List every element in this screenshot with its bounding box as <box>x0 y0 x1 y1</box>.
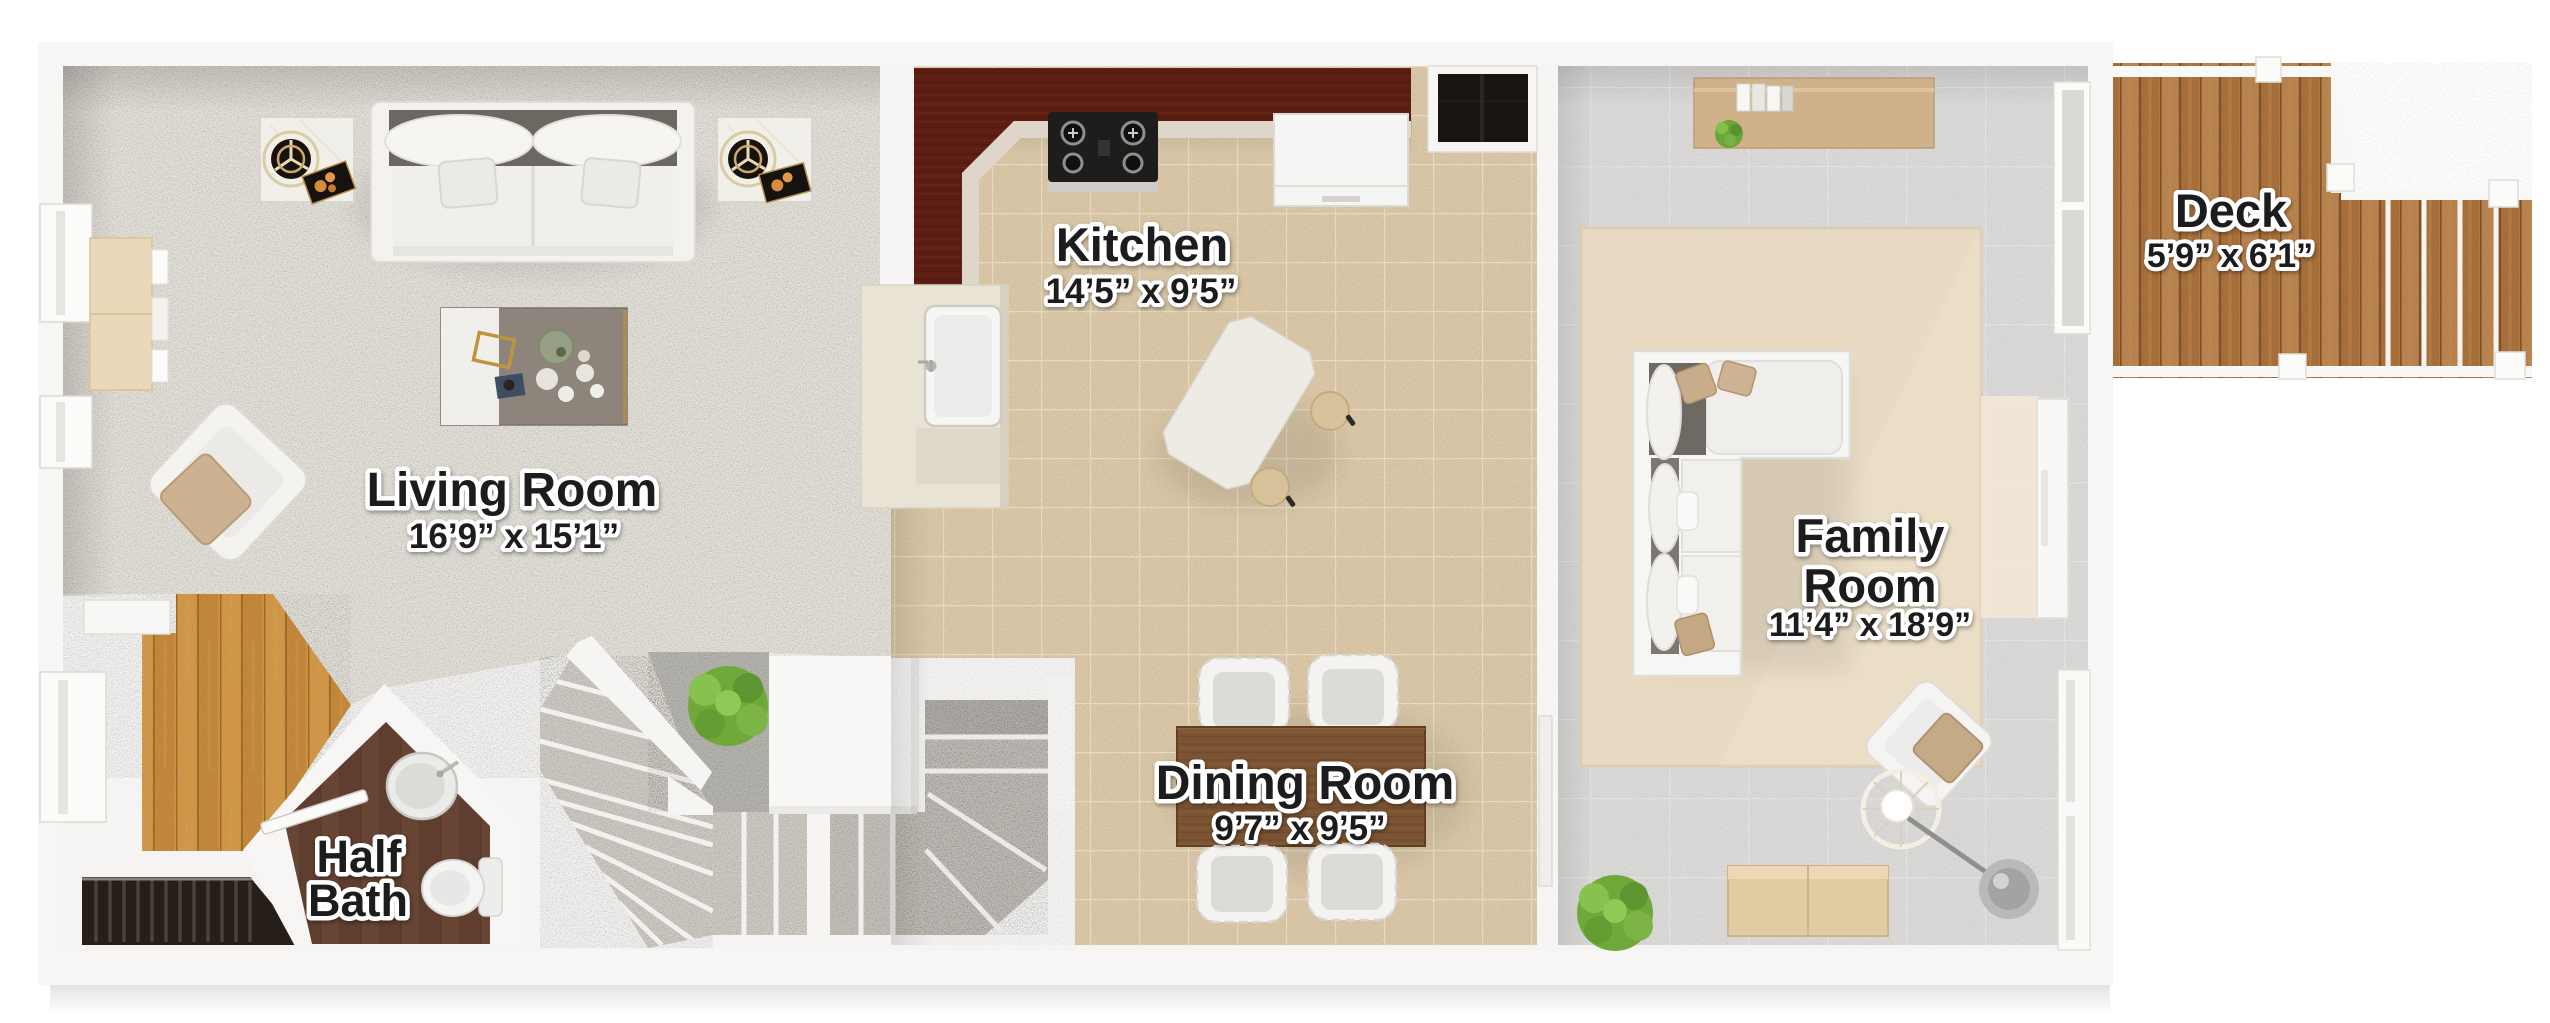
svg-text:14’5” x 9’5”: 14’5” x 9’5” <box>1046 272 1237 311</box>
svg-text:Family: Family <box>1796 509 1945 562</box>
svg-text:Deck: Deck <box>2175 184 2288 237</box>
svg-text:5’9” x 6’1”: 5’9” x 6’1” <box>2147 237 2313 275</box>
svg-text:Dining Room: Dining Room <box>1156 757 1455 810</box>
svg-text:Living Room: Living Room <box>367 464 658 517</box>
svg-text:16’9” x 15’1”: 16’9” x 15’1” <box>409 517 619 556</box>
svg-text:Room: Room <box>1803 559 1936 612</box>
svg-text:Kitchen: Kitchen <box>1056 218 1228 271</box>
svg-text:9’7” x 9’5”: 9’7” x 9’5” <box>1214 809 1385 848</box>
svg-text:Bath: Bath <box>308 875 408 926</box>
svg-text:11’4” x 18’9”: 11’4” x 18’9” <box>1769 606 1971 644</box>
